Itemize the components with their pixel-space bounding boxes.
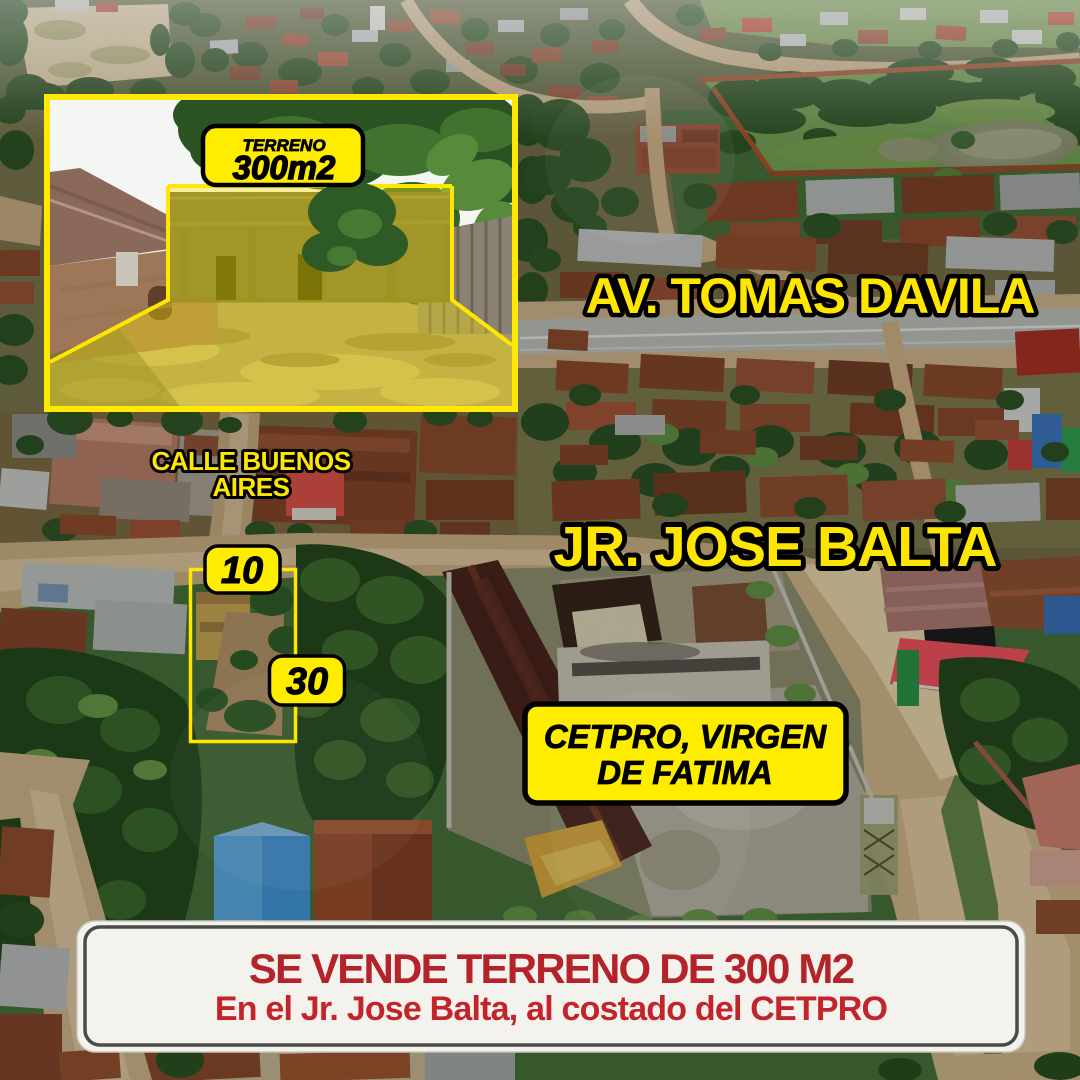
svg-text:30: 30 [286, 661, 328, 703]
svg-text:En el Jr. Jose Balta, al costa: En el Jr. Jose Balta, al costado del CET… [215, 990, 888, 1028]
svg-text:SE VENDE TERRENO DE 300 M2: SE VENDE TERRENO DE 300 M2 [249, 945, 854, 992]
svg-text:300m2: 300m2 [233, 149, 336, 186]
svg-text:AIRES: AIRES [213, 472, 290, 502]
svg-text:10: 10 [221, 550, 263, 592]
svg-text:CETPRO, VIRGEN: CETPRO, VIRGEN [544, 718, 828, 755]
svg-text:AV. TOMAS DAVILA: AV. TOMAS DAVILA [586, 268, 1035, 324]
svg-text:JR. JOSE BALTA: JR. JOSE BALTA [553, 515, 996, 579]
svg-text:DE FATIMA: DE FATIMA [597, 754, 772, 791]
